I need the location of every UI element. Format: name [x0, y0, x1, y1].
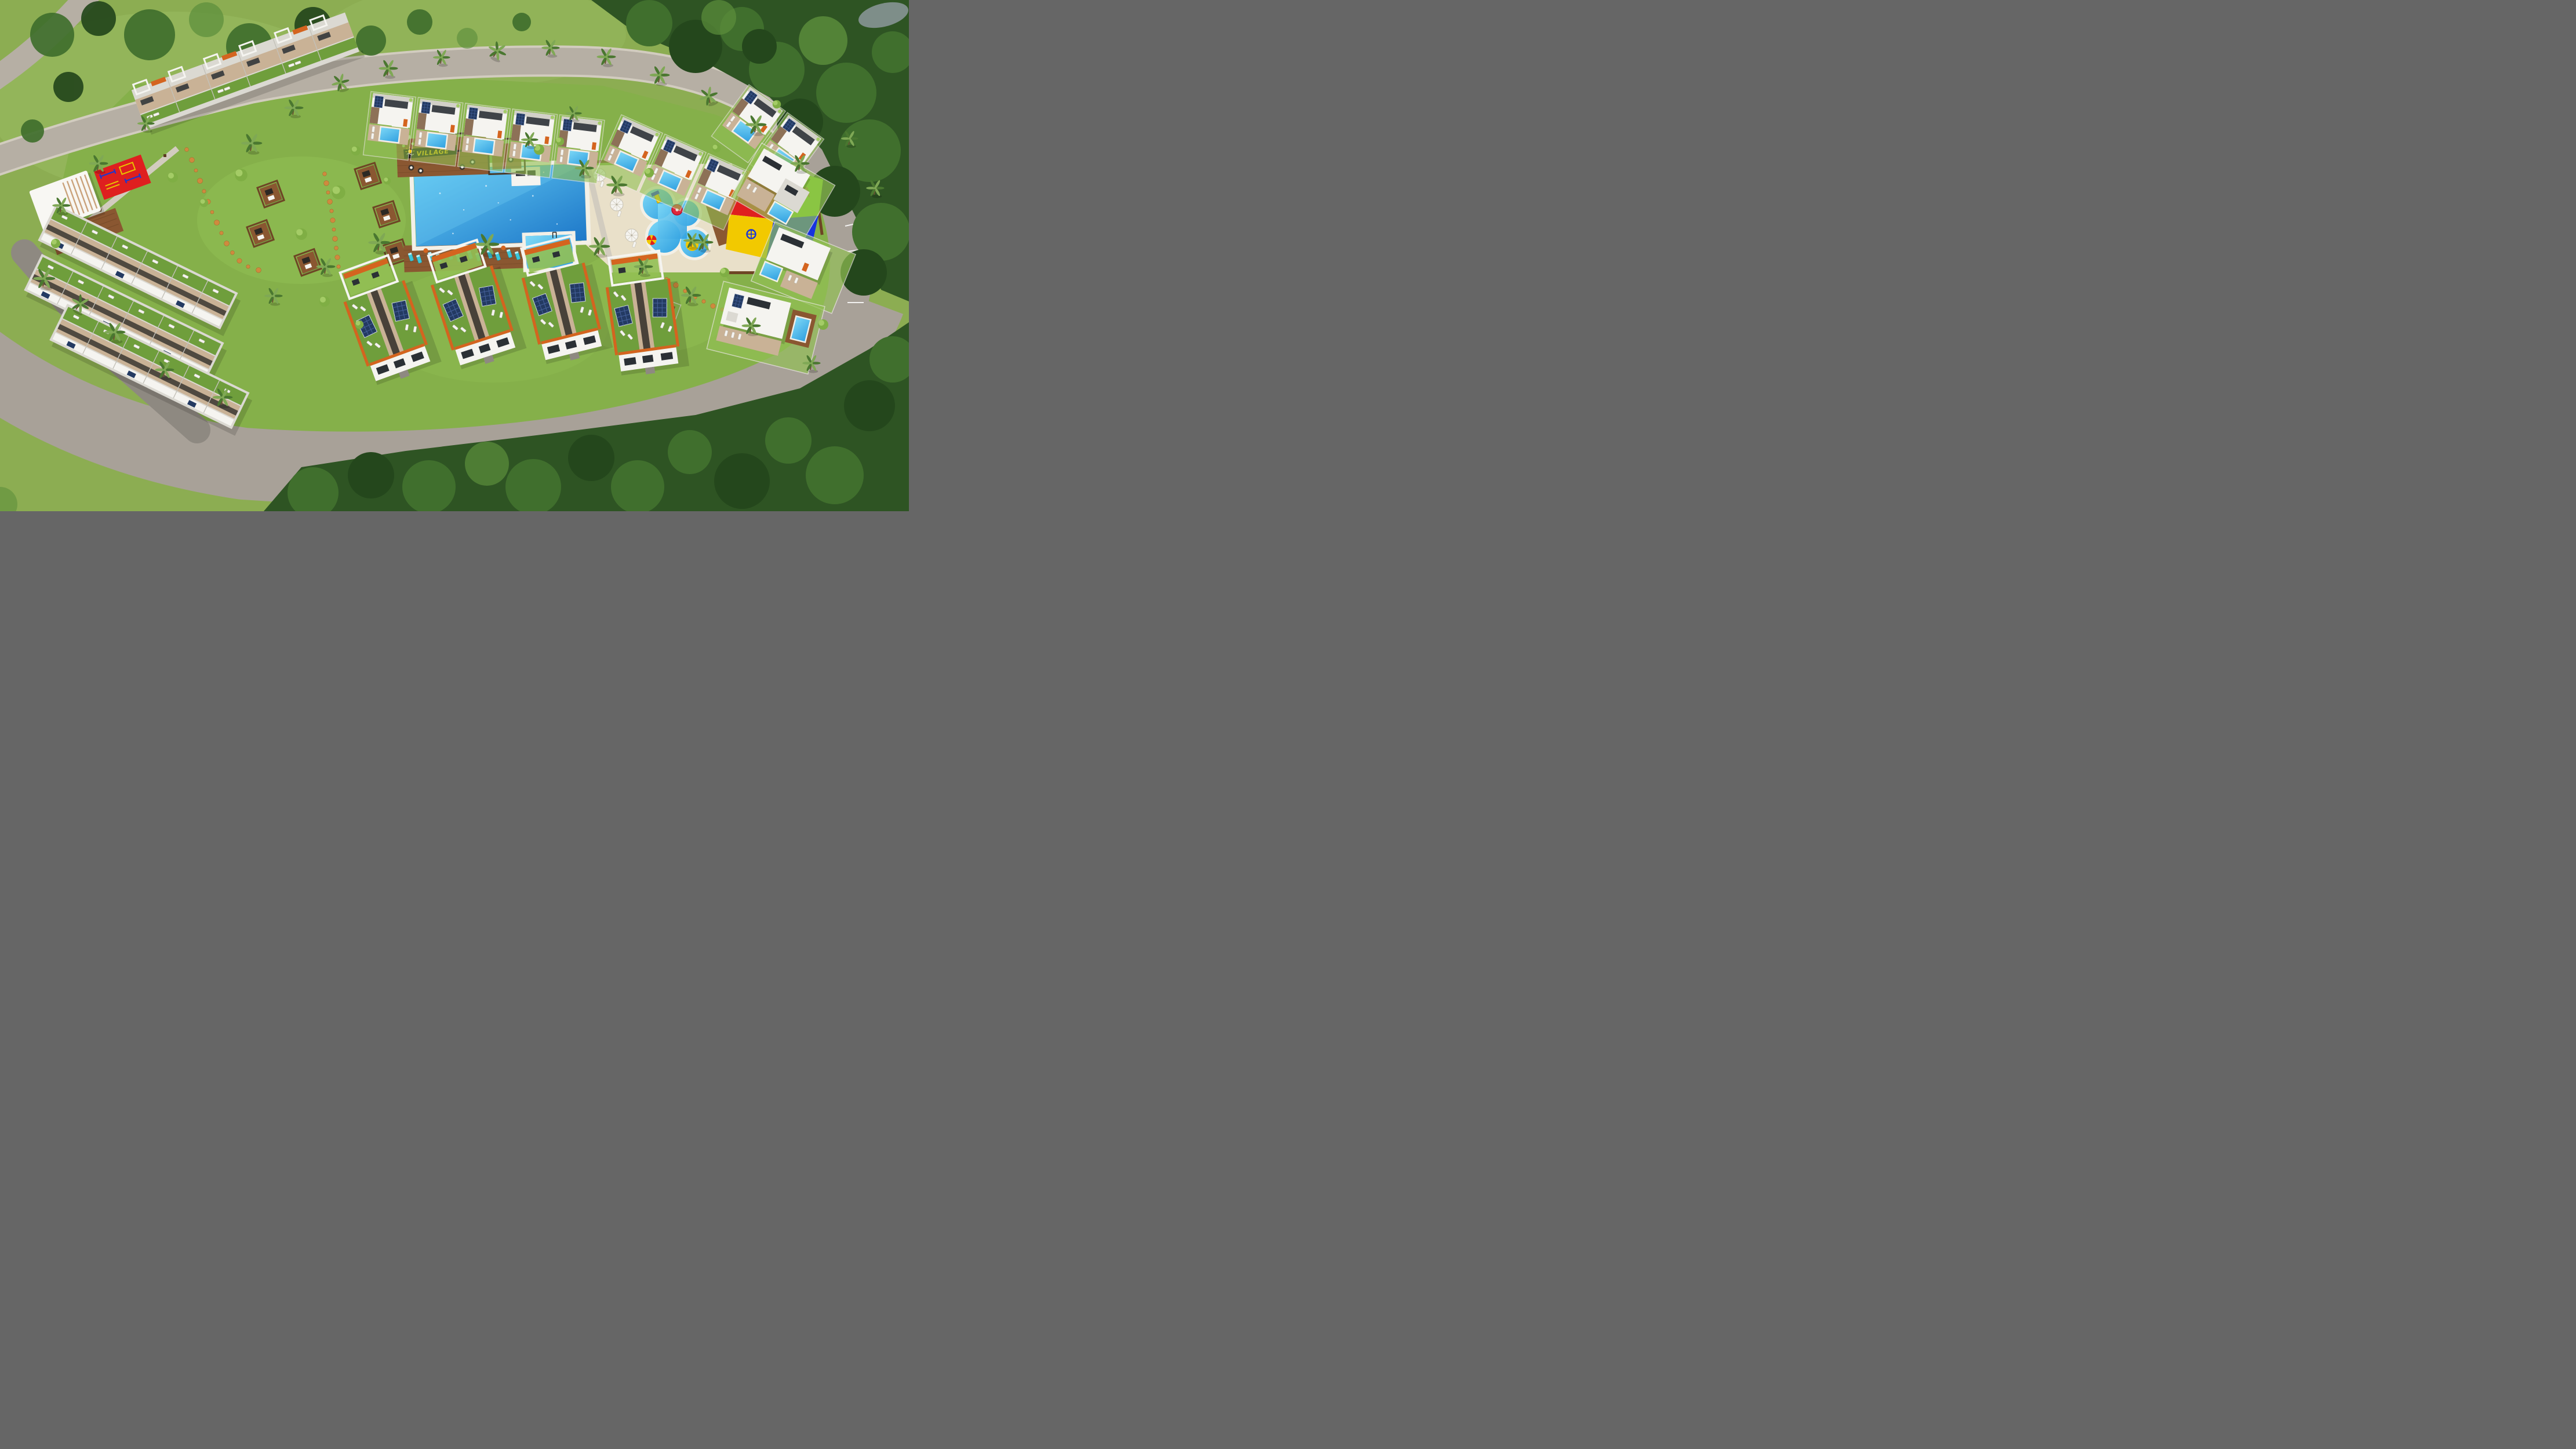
beach-umbrella [647, 235, 657, 245]
masterplan-canvas: VILLAGE [0, 0, 909, 511]
spinner [747, 230, 756, 239]
resort-masterplan-render: VILLAGE [0, 0, 909, 511]
